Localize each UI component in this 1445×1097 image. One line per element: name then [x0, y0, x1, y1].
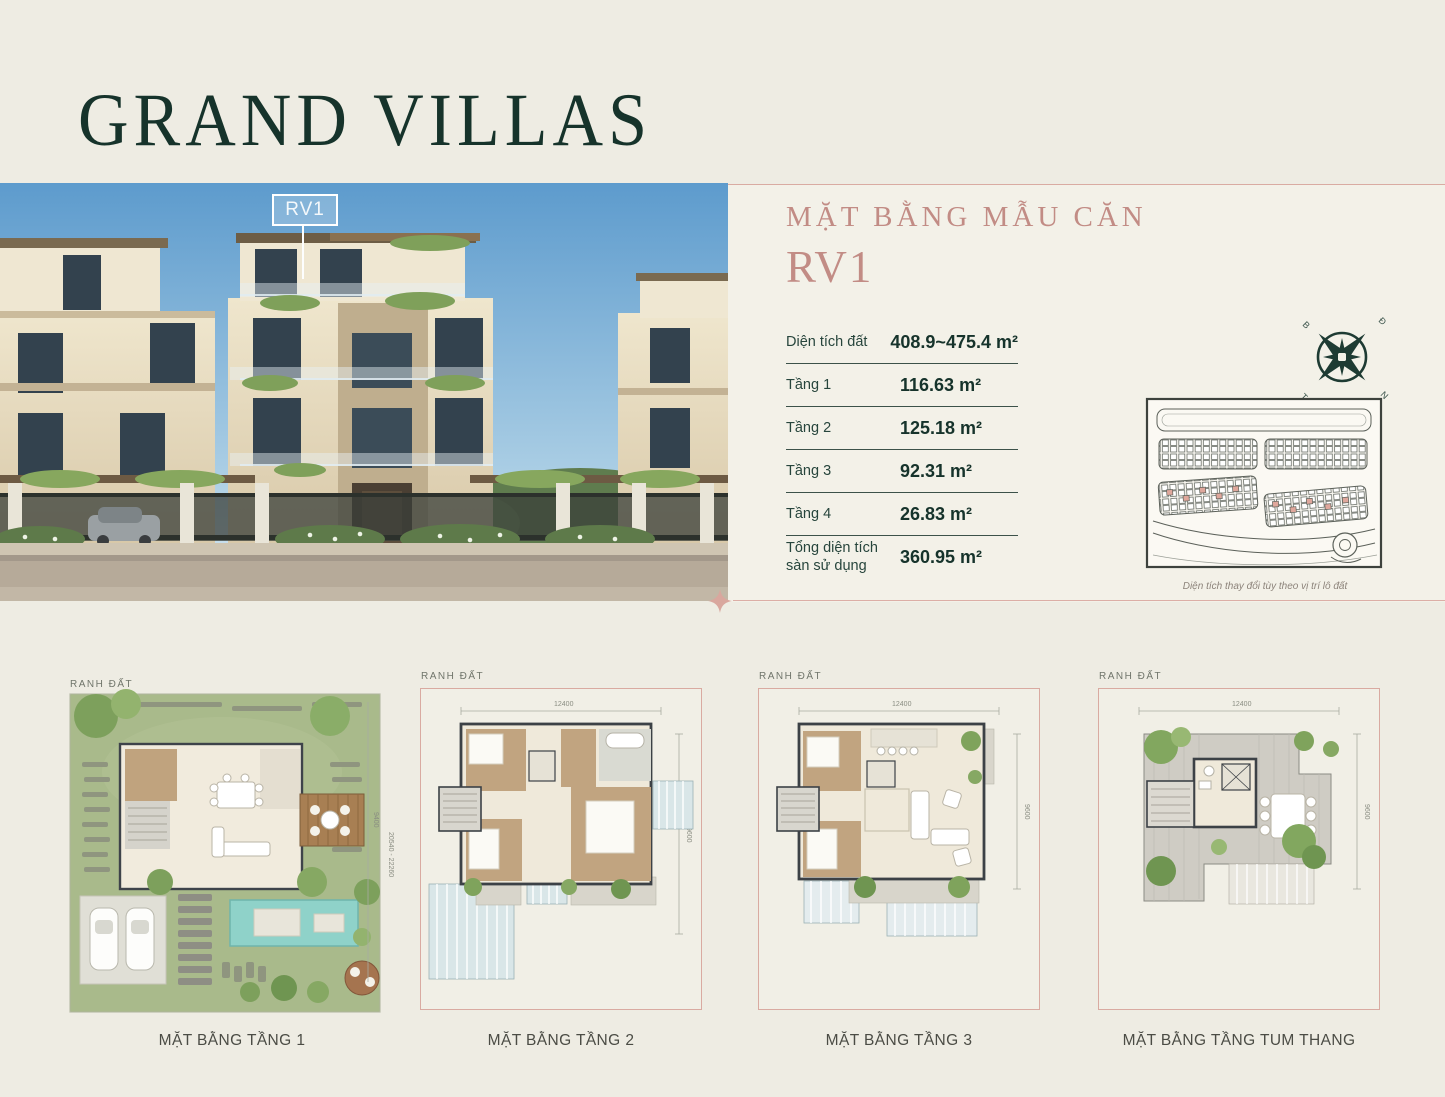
compass-letter-nw: B — [1301, 319, 1312, 330]
plan2-boundary-label: RANH ĐẤT — [421, 671, 484, 682]
spec-label: Tầng 3 — [786, 462, 900, 480]
villa-photo-illustration — [0, 183, 728, 601]
plan2-caption: MẶT BẰNG TẦNG 2 — [420, 1032, 702, 1050]
spec-value: 26.83 m² — [900, 504, 972, 525]
spec-row-total-area: Tổng diện tích sàn sử dụng 360.95 m² — [786, 536, 1018, 578]
plan1-boundary-label: RANH ĐẤT — [70, 679, 133, 690]
panel-heading: MẶT BẰNG MẪU CĂN — [786, 201, 1147, 234]
floorplan-level2: 12400 9600 — [420, 688, 702, 1010]
compass-letter-ne: Đ — [1377, 315, 1389, 327]
info-panel: MẶT BẰNG MẪU CĂN RV1 Diện tích đất 408.9… — [728, 184, 1445, 602]
floorplan-level1: 9400 20540 - 22260 — [62, 682, 402, 1018]
spec-label: Diện tích đất — [786, 333, 890, 351]
plan4-caption: MẶT BẰNG TẦNG TUM THANG — [1098, 1032, 1380, 1050]
plan1-dim-range: 20540 - 22260 — [387, 832, 394, 877]
compass-icon: B Đ N T — [1290, 303, 1394, 407]
spec-value: 360.95 m² — [900, 547, 982, 568]
spec-row-floor-2: Tầng 2 125.18 m² — [786, 407, 1018, 450]
plan4-boundary-label: RANH ĐẤT — [1099, 671, 1162, 682]
plan3-boundary-label: RANH ĐẤT — [759, 671, 822, 682]
spec-row-land-area: Diện tích đất 408.9~475.4 m² — [786, 321, 1018, 364]
map-disclaimer: Diện tích thay đổi tùy theo vị trí lô đấ… — [1135, 581, 1395, 592]
plan1-dim-9400: 9400 — [372, 812, 379, 828]
floorplan-rooftop: 12400 9600 — [1098, 688, 1380, 1010]
page-title: GRAND VILLAS — [78, 78, 652, 164]
plan4-dim-top: 12400 — [1232, 701, 1252, 708]
spec-label: Tầng 1 — [786, 376, 900, 394]
spec-value: 116.63 m² — [900, 375, 981, 396]
spec-row-floor-1: Tầng 1 116.63 m² — [786, 364, 1018, 407]
plan1-caption: MẶT BẰNG TẦNG 1 — [62, 1032, 402, 1050]
plan4-dim-right: 9600 — [1363, 804, 1370, 820]
divider-star-icon — [708, 589, 732, 613]
spec-label: Tầng 4 — [786, 505, 900, 523]
spec-row-floor-4: Tầng 4 26.83 m² — [786, 493, 1018, 536]
area-spec-table: Diện tích đất 408.9~475.4 m² Tầng 1 116.… — [786, 321, 1018, 578]
masterplan-minimap — [1145, 397, 1385, 573]
spec-row-floor-3: Tầng 3 92.31 m² — [786, 450, 1018, 493]
villa-photo: RV1 — [0, 183, 728, 601]
brochure-page: GRAND VILLAS — [0, 0, 1445, 1097]
unit-callout-badge: RV1 — [272, 194, 338, 226]
callout-line — [302, 224, 304, 279]
spec-value: 125.18 m² — [900, 418, 982, 439]
spec-value: 408.9~475.4 m² — [890, 332, 1018, 353]
plan3-dim-top: 12400 — [892, 701, 912, 708]
spec-value: 92.31 m² — [900, 461, 972, 482]
plan3-dim-right: 9600 — [1023, 804, 1030, 820]
floorplan-level3: 12400 9600 — [758, 688, 1040, 1010]
panel-unit-code: RV1 — [786, 241, 873, 293]
plan3-caption: MẶT BẰNG TẦNG 3 — [758, 1032, 1040, 1050]
spec-label: Tổng diện tích sàn sử dụng — [786, 539, 900, 575]
spec-label: Tầng 2 — [786, 419, 900, 437]
section-divider — [733, 600, 1445, 601]
plan2-dim-top: 12400 — [554, 701, 574, 708]
